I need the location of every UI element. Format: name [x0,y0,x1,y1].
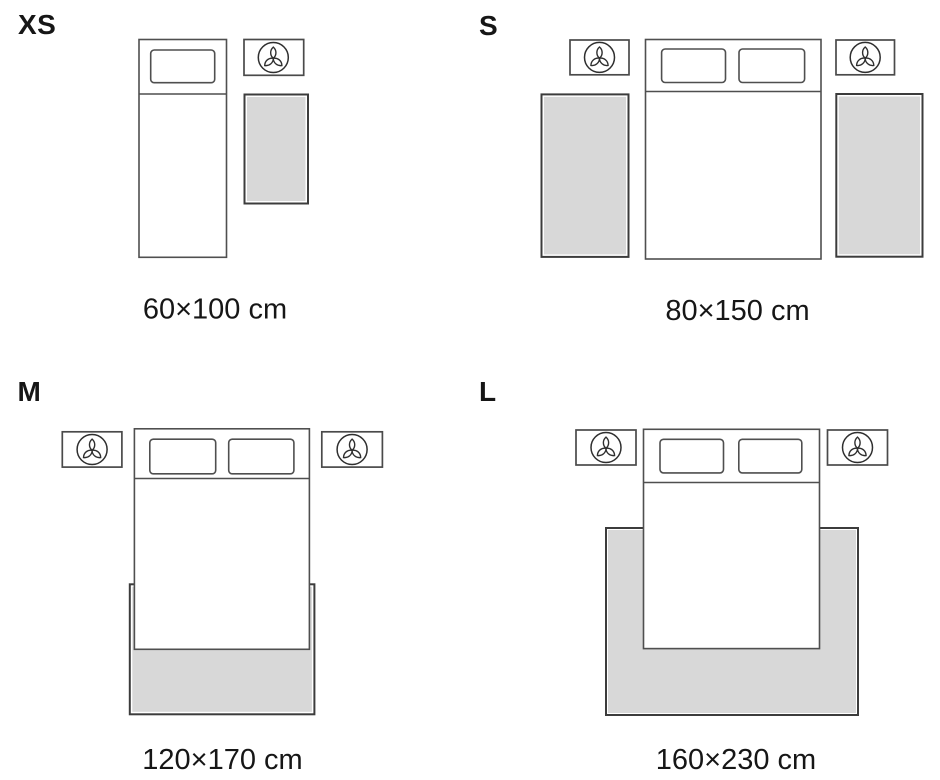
svg-text:120×170 cm: 120×170 cm [142,744,302,776]
svg-text:M: M [18,376,42,407]
svg-text:80×150 cm: 80×150 cm [665,295,809,327]
svg-text:S: S [479,10,498,41]
svg-text:L: L [479,376,497,407]
svg-text:XS: XS [18,9,56,40]
svg-text:160×230 cm: 160×230 cm [656,744,816,776]
svg-text:60×100 cm: 60×100 cm [143,294,287,326]
